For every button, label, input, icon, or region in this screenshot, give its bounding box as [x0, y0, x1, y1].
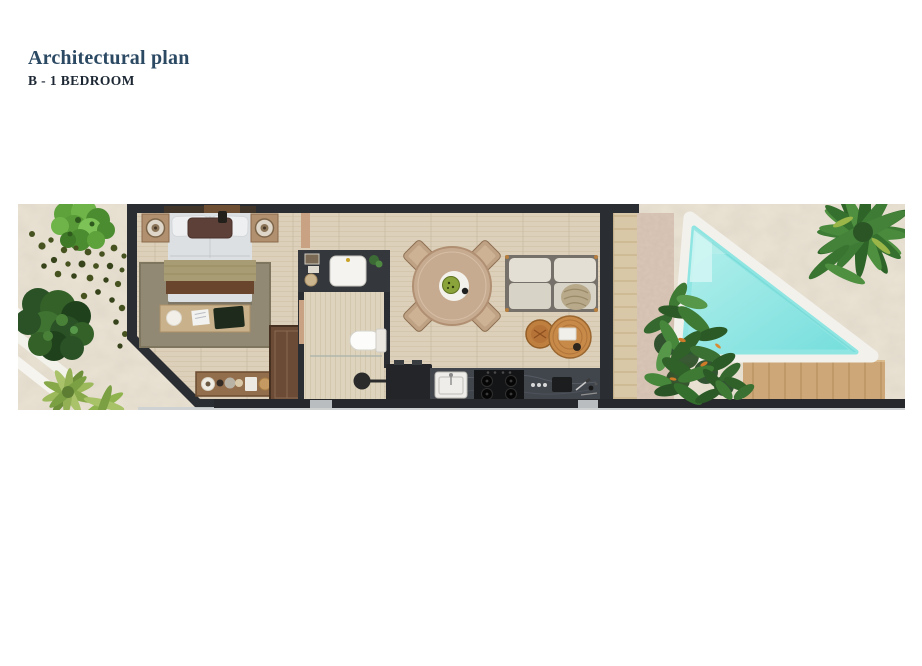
nightstand-right	[251, 214, 278, 242]
book	[559, 328, 576, 340]
throw-blanket	[561, 284, 591, 310]
door-threshold	[578, 400, 598, 408]
dish	[443, 277, 460, 294]
page-title: Architectural plan	[28, 46, 190, 70]
vanity	[298, 250, 390, 292]
shower-drain	[354, 373, 371, 390]
basket	[305, 274, 317, 286]
tray	[167, 311, 182, 326]
olive-throw	[164, 260, 256, 281]
page: Architectural plan B - 1 BEDROOM	[0, 0, 922, 666]
pocket-door	[299, 300, 304, 344]
laptop	[213, 306, 245, 330]
bedroom-bench	[160, 305, 250, 332]
nightstand-left	[142, 214, 169, 242]
floor-plan-rendering	[18, 204, 905, 410]
sun-deck	[743, 360, 885, 402]
kitchen-island	[386, 364, 432, 402]
page-subtitle: B - 1 BEDROOM	[28, 72, 190, 89]
cup	[573, 343, 581, 351]
header: Architectural plan B - 1 BEDROOM	[28, 46, 190, 89]
sofa	[505, 255, 598, 312]
brown-blanket	[166, 281, 254, 294]
floor-plan	[18, 204, 905, 410]
decor-frames	[305, 254, 319, 264]
kitchen-sink	[435, 372, 467, 398]
double-bed	[164, 205, 256, 305]
door-threshold	[310, 400, 332, 408]
property-wall	[138, 399, 905, 410]
entry-door	[301, 213, 310, 248]
gas-stove	[474, 370, 524, 400]
dining-set	[402, 239, 502, 333]
terrace-strip	[613, 213, 637, 399]
cutting-board	[552, 377, 572, 392]
